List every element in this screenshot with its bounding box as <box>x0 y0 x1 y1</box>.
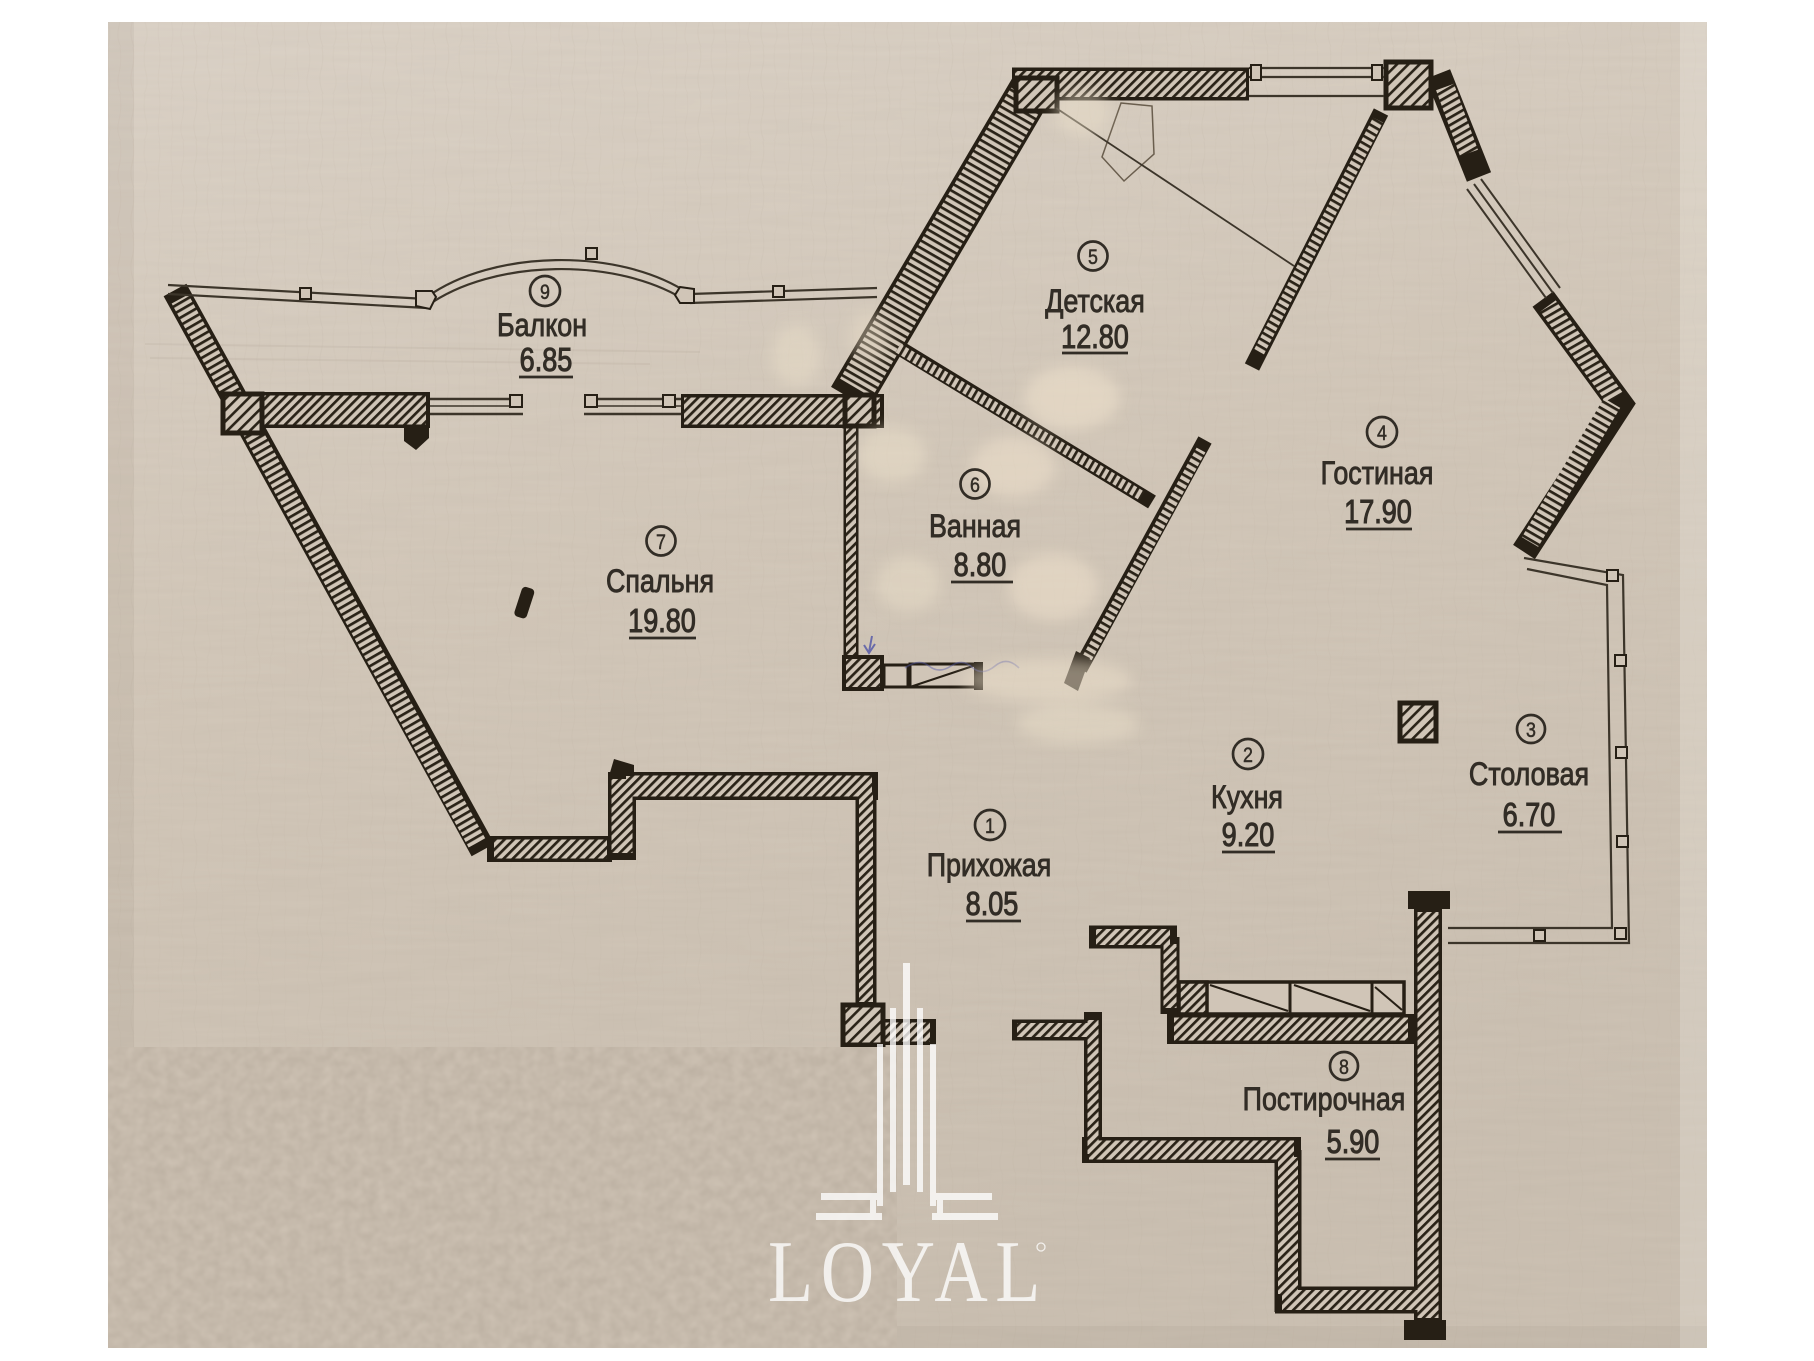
svg-text:LOYAL: LOYAL <box>768 1223 1048 1320</box>
svg-text:12.80: 12.80 <box>1061 320 1129 356</box>
svg-text:Гостиная: Гостиная <box>1321 456 1434 492</box>
svg-text:4: 4 <box>1377 422 1387 446</box>
svg-text:Ванная: Ванная <box>929 509 1021 545</box>
svg-text:Балкон: Балкон <box>497 308 587 344</box>
svg-text:1: 1 <box>985 815 995 839</box>
svg-text:8.80: 8.80 <box>954 548 1007 584</box>
svg-text:Кухня: Кухня <box>1211 780 1283 816</box>
svg-text:2: 2 <box>1243 744 1253 768</box>
svg-text:5.90: 5.90 <box>1327 1125 1380 1161</box>
svg-text:Спальня: Спальня <box>606 564 714 600</box>
svg-text:6.70: 6.70 <box>1503 798 1556 834</box>
svg-text:7: 7 <box>656 531 666 555</box>
svg-text:9.20: 9.20 <box>1222 818 1275 854</box>
svg-text:8.05: 8.05 <box>966 887 1019 923</box>
svg-text:19.80: 19.80 <box>628 604 696 640</box>
svg-text:17.90: 17.90 <box>1344 495 1412 531</box>
svg-text:9: 9 <box>540 281 550 305</box>
svg-text:5: 5 <box>1088 246 1098 270</box>
svg-text:8: 8 <box>1339 1056 1349 1080</box>
svg-text:6: 6 <box>970 474 980 498</box>
svg-text:Детская: Детская <box>1045 284 1145 320</box>
svg-text:6.85: 6.85 <box>520 343 573 379</box>
svg-text:Постирочная: Постирочная <box>1243 1082 1406 1118</box>
svg-text:Прихожая: Прихожая <box>927 848 1052 884</box>
svg-text:3: 3 <box>1526 719 1536 743</box>
svg-text:Столовая: Столовая <box>1469 757 1589 793</box>
